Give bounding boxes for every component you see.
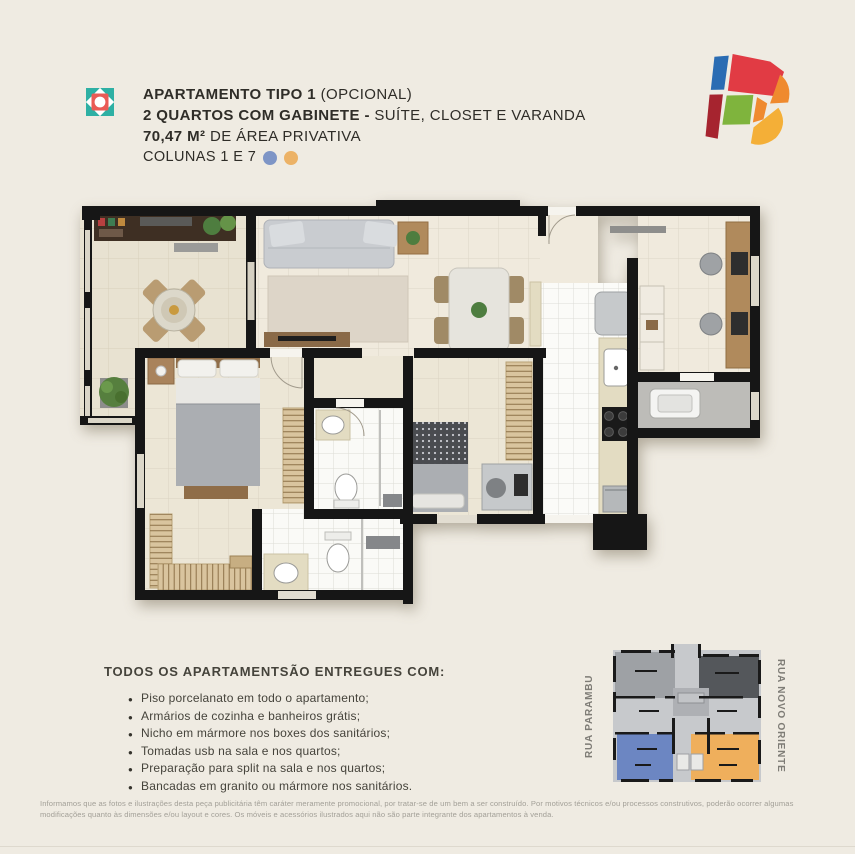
centerpiece-plant — [471, 302, 487, 318]
floor-plan — [78, 198, 778, 650]
bed-bench — [184, 486, 248, 499]
subtitle-bold: 2 QUARTOS COM GABINETE - — [143, 107, 374, 124]
feature-item: Tomadas usb na sala e nos quartos; — [128, 743, 534, 761]
feature-item: Armários de cozinha e banheiros grátis; — [128, 708, 534, 726]
area-bold: 70,47 M² — [143, 128, 205, 145]
area-line: 70,47 M² DE ÁREA PRIVATIVA — [143, 126, 586, 147]
monitor — [731, 312, 748, 335]
feature-item: Piso porcelanato em todo o apartamento; — [128, 690, 534, 708]
corridor-floor — [314, 356, 412, 398]
desk-chair — [486, 478, 506, 498]
entry-shelf — [610, 226, 666, 233]
office-window — [751, 256, 759, 306]
service-window — [751, 392, 759, 420]
dining-chair — [507, 317, 524, 344]
disclaimer-text: Informamos que as fotos e ilustrações de… — [40, 799, 820, 820]
brand-logo — [700, 48, 795, 148]
entrance-door — [548, 207, 576, 215]
suite-window — [137, 454, 144, 508]
shower-bench — [366, 536, 400, 549]
toilet — [335, 474, 357, 502]
columns-label: COLUNAS 1 E 7 — [143, 147, 256, 168]
title-line: APARTAMENTO TIPO 1 (OPCIONAL) — [143, 84, 586, 105]
elevator — [677, 754, 689, 770]
features-list: Piso porcelanato em todo o apartamento; … — [128, 690, 534, 795]
suite-door — [270, 349, 302, 357]
elevator — [691, 754, 703, 770]
subtitle-line: 2 QUARTOS COM GABINETE - SUÍTE, CLOSET E… — [143, 105, 586, 126]
pillow — [178, 360, 216, 377]
varanda-glass — [85, 308, 90, 370]
header-text-block: APARTAMENTO TIPO 1 (OPCIONAL) 2 QUARTOS … — [143, 84, 586, 168]
building-key-plan: RUA PARAMBU R — [584, 640, 786, 792]
varanda-glass-bottom — [88, 418, 132, 423]
bottom-rule — [0, 846, 855, 847]
features-heading: TODOS OS APARTAMENTSÃO ENTREGUES COM: — [104, 664, 534, 679]
feature-item: Bancadas em granito ou mármore nos sanit… — [128, 778, 534, 796]
plant — [99, 377, 129, 407]
basin — [322, 416, 344, 434]
shoe-rack — [230, 556, 252, 568]
mosaic-b-logo — [705, 53, 791, 147]
title-bold: APARTAMENTO TIPO 1 — [143, 86, 316, 103]
fridge — [595, 292, 632, 335]
pillow — [412, 494, 464, 508]
varanda-glass — [85, 230, 90, 292]
unit-top-left — [615, 652, 675, 698]
toilet — [327, 544, 349, 572]
dining-chair — [434, 317, 451, 344]
service-sliding-door — [680, 373, 714, 381]
street-label-right: RUA NOVO ORIENTE — [775, 641, 786, 791]
kitchen-sliding-door — [545, 515, 593, 523]
service-furniture — [650, 389, 700, 418]
title-optional: (OPCIONAL) — [316, 86, 412, 103]
living-furniture — [264, 220, 428, 347]
shower-bench — [383, 494, 402, 507]
office-chair — [700, 253, 722, 275]
dining-chair — [507, 276, 524, 303]
dining-chair — [434, 276, 451, 303]
columns-line: COLUNAS 1 E 7 — [143, 147, 586, 168]
pillow — [220, 360, 258, 377]
varanda-sliding-door — [248, 262, 255, 320]
key-plan-drawing — [599, 640, 771, 792]
basin — [274, 563, 298, 583]
column-1-dot — [263, 151, 277, 165]
features-section: TODOS OS APARTAMENTSÃO ENTREGUES COM: Pi… — [104, 664, 534, 795]
pass-through-counter — [530, 282, 541, 346]
feature-item: Preparação para split na sala e nos quar… — [128, 760, 534, 778]
column-7-dot — [284, 151, 298, 165]
varanda-glass — [85, 386, 90, 416]
subtitle-regular: SUÍTE, CLOSET E VARANDA — [374, 107, 585, 124]
laptop — [514, 474, 528, 496]
feature-item: Nicho em mármore nos boxes dos sanitário… — [128, 725, 534, 743]
bath-social-door — [336, 399, 364, 407]
flyer-page: { "header": { "line1_bold": "APARTAMENTO… — [0, 0, 855, 854]
monitor — [731, 252, 748, 275]
office-chair — [700, 313, 722, 335]
tv — [278, 336, 336, 341]
unit-column-1 — [617, 734, 673, 780]
bedroom2-window — [437, 515, 477, 523]
bath-suite-window — [278, 591, 316, 599]
street-label-left: RUA PARAMBU — [584, 641, 595, 791]
flower-badge-icon — [86, 88, 114, 116]
area-regular: DE ÁREA PRIVATIVA — [205, 128, 361, 145]
